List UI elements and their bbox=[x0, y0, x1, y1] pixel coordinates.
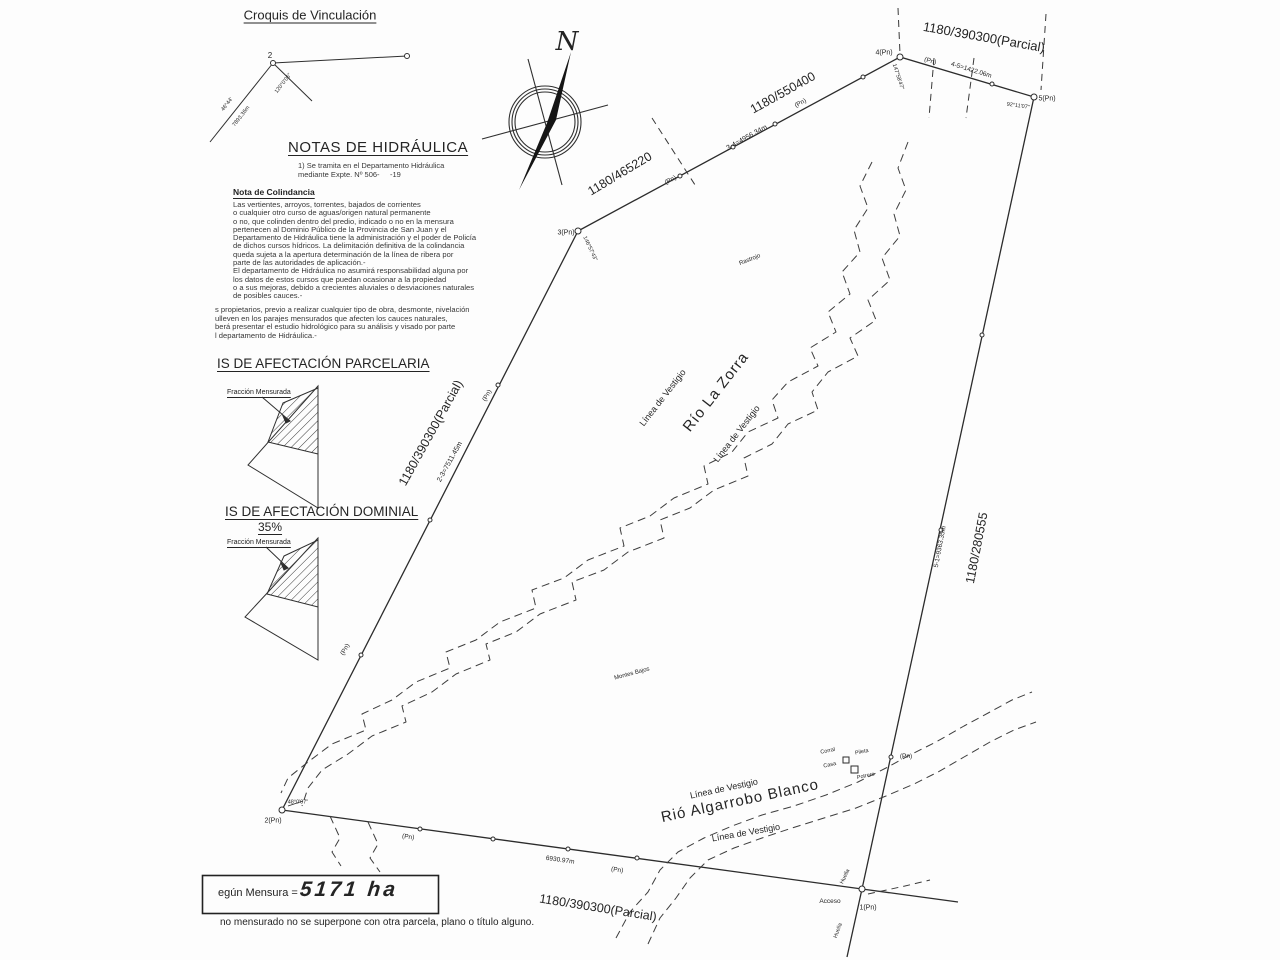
colindancia-title: Nota de Colindancia bbox=[233, 188, 315, 197]
dominial-fraccion-label: Fracción Mensurada bbox=[227, 539, 291, 546]
plan-drawing bbox=[0, 0, 1280, 960]
dominial-percent: 35% bbox=[258, 521, 282, 533]
notas-title: NOTAS DE HIDRÁULICA bbox=[288, 140, 468, 155]
vertex-label-2: 2(Pn) bbox=[264, 818, 281, 825]
vertex-label-3: 3(Pn) bbox=[557, 230, 574, 237]
dominial-title: IS DE AFECTACIÓN DOMINIAL bbox=[225, 505, 418, 519]
croquis-sketch bbox=[210, 54, 410, 143]
parcelaria-sketch bbox=[248, 386, 318, 508]
footer-note: no mensurado no se superpone con otra pa… bbox=[220, 918, 534, 928]
parcelaria-title: IS DE AFECTACIÓN PARCELARIA bbox=[217, 357, 430, 371]
compass-north-label: N bbox=[556, 29, 579, 55]
scanned-survey-plan: Croquis de Vinculación 2 120°0'06" 46°44… bbox=[0, 0, 1280, 960]
vertex-label-1: 1(Pn) bbox=[859, 905, 876, 912]
building-symbols bbox=[843, 757, 858, 773]
croquis-title: Croquis de Vinculación bbox=[244, 9, 377, 22]
hidraulica-paragraph2: s propietarios, previo a realizar cualqu… bbox=[215, 306, 480, 340]
acceso-label: Acceso bbox=[819, 899, 840, 906]
survey-point-markers bbox=[279, 54, 1037, 892]
pn-mark-right: (Pn) bbox=[900, 754, 912, 761]
parcelaria-fraccion-label: Fracción Mensurada bbox=[227, 389, 291, 396]
colindancia-paragraph: Las vertientes, arroyos, torrentes, baja… bbox=[233, 201, 483, 301]
mensura-label: egún Mensura = bbox=[218, 888, 298, 899]
croquis-vertex-label: 2 bbox=[268, 52, 272, 60]
vertex-label-4: 4(Pn) bbox=[875, 50, 892, 57]
compass-rose bbox=[482, 52, 608, 190]
angle-label-v2: 48°0'07" bbox=[288, 800, 309, 806]
notas-item1: 1) Se tramita en el Departamento Hidrául… bbox=[298, 162, 444, 179]
vertex-label-5: 5(Pn) bbox=[1038, 96, 1055, 103]
dominial-sketch bbox=[245, 538, 318, 660]
mensura-value-handwritten: 5171 ha bbox=[299, 879, 399, 900]
